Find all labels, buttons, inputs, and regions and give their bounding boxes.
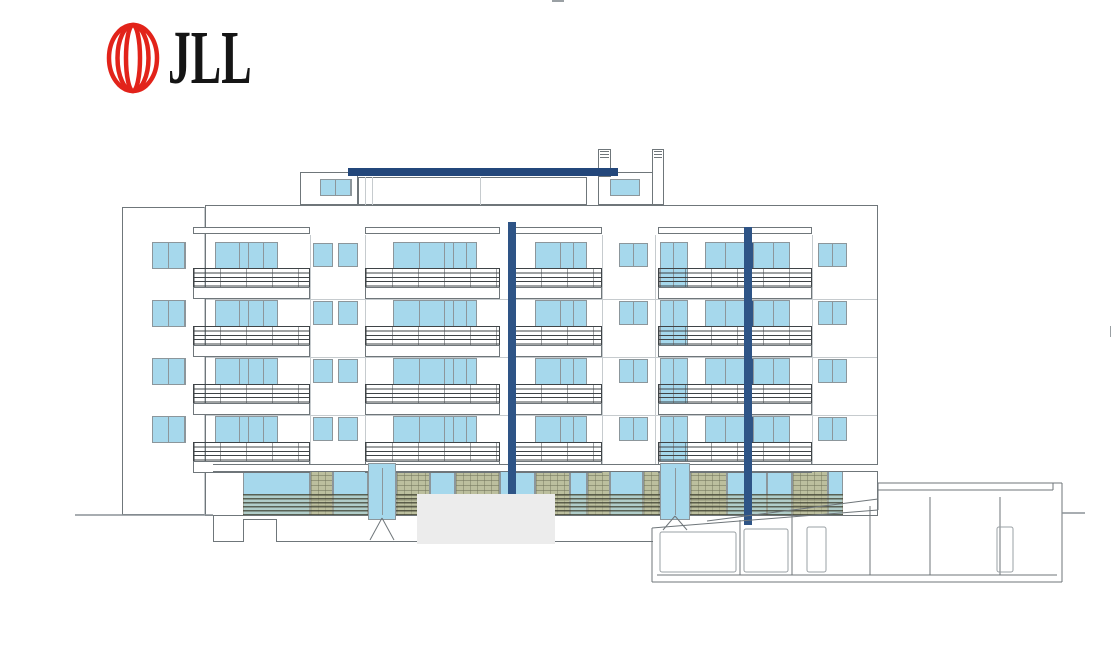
scan-artifact — [552, 0, 564, 2]
square-window-wide — [619, 301, 648, 325]
glass-pane — [169, 301, 184, 326]
balcony-railing — [514, 442, 602, 461]
glass-pane — [774, 359, 790, 384]
structural-column — [744, 227, 752, 525]
glass-pane — [754, 243, 773, 268]
glass-pane — [240, 359, 248, 384]
balcony-railing — [193, 442, 310, 461]
glass-pane — [574, 417, 586, 442]
glass-pane — [634, 302, 647, 324]
glass-pane — [420, 417, 444, 442]
glass-pane — [339, 360, 357, 382]
glass-pane — [561, 417, 573, 442]
glass-pane — [726, 301, 744, 326]
glass-pane — [445, 359, 453, 384]
balcony-slab — [514, 287, 602, 299]
balcony-door-b — [393, 358, 477, 385]
entrance-mullion — [382, 468, 383, 515]
glass-pane — [264, 301, 278, 326]
balcony-railing — [514, 326, 602, 345]
glass-pane — [726, 243, 744, 268]
glass-pane — [536, 417, 560, 442]
panel-joint-line — [655, 235, 656, 464]
balcony-slab — [658, 345, 812, 357]
glass-pane — [216, 301, 239, 326]
glass-pane — [339, 418, 357, 440]
balcony-slab — [514, 345, 602, 357]
glass-pane — [726, 359, 744, 384]
glass-pane — [249, 417, 263, 442]
glass-pane — [536, 359, 560, 384]
jll-sphere-mark-icon — [106, 22, 160, 94]
balcony-railing — [365, 326, 500, 345]
balcony-slab — [193, 345, 310, 357]
square-window — [313, 417, 333, 441]
penthouse-window — [610, 179, 640, 196]
penthouse-mid — [358, 177, 587, 205]
glass-pane — [420, 359, 444, 384]
glass-pane — [314, 302, 332, 324]
entrance-door — [660, 463, 690, 520]
panel-joint-line — [602, 235, 603, 464]
glass-pane — [314, 244, 332, 266]
glass-pane — [394, 417, 419, 442]
glass-pane — [574, 243, 586, 268]
square-window-wide — [619, 417, 648, 441]
glass-pane — [249, 359, 263, 384]
penthouse-window — [320, 179, 352, 196]
glass-pane — [833, 244, 846, 266]
balcony-railing — [658, 384, 812, 403]
glass-pane — [467, 301, 477, 326]
side-window — [152, 300, 186, 327]
glass-pane — [264, 359, 278, 384]
glass-pane — [706, 301, 725, 326]
glass-pane — [819, 360, 832, 382]
balcony-slab — [658, 287, 812, 299]
balcony-railing — [514, 384, 602, 403]
glass-pane — [420, 243, 444, 268]
glass-pane — [467, 359, 477, 384]
square-window-wide — [619, 243, 648, 267]
glass-pane — [620, 418, 633, 440]
glass-pane — [240, 301, 248, 326]
canopy-slab — [514, 227, 602, 234]
chimney-vent-grille — [600, 151, 609, 160]
square-window-wide — [818, 243, 847, 267]
ground-slab-band — [213, 464, 878, 472]
glass-pane — [774, 417, 790, 442]
glass-pane — [216, 359, 239, 384]
square-window-wide — [818, 301, 847, 325]
balcony-door-c — [535, 242, 587, 269]
balcony-door-c — [535, 416, 587, 443]
balcony-door-a — [215, 416, 278, 443]
glass-pane — [467, 243, 477, 268]
glass-pane — [321, 180, 335, 195]
glass-pane — [240, 243, 248, 268]
square-window-wide — [619, 359, 648, 383]
glass-pane — [561, 359, 573, 384]
glass-pane — [634, 418, 647, 440]
glass-pane — [620, 244, 633, 266]
balcony-door-c — [535, 300, 587, 327]
glass-pane — [706, 417, 725, 442]
glass-pane — [833, 418, 846, 440]
balcony-door-b — [393, 242, 477, 269]
glass-pane — [394, 243, 419, 268]
glass-pane — [394, 301, 419, 326]
glass-pane — [240, 417, 248, 442]
balcony-railing — [193, 326, 310, 345]
glass-pane — [394, 359, 419, 384]
glass-pane — [754, 417, 773, 442]
glass-pane — [445, 243, 453, 268]
scan-artifact — [1110, 326, 1111, 337]
brochure-page: JLL — [0, 0, 1116, 655]
side-window — [152, 358, 186, 385]
glass-pane — [249, 243, 263, 268]
balcony-slab — [193, 403, 310, 415]
glass-pane — [634, 360, 647, 382]
square-window — [313, 359, 333, 383]
balcony-door-a — [215, 358, 278, 385]
glass-pane — [561, 243, 573, 268]
glass-pane — [611, 180, 639, 195]
glass-pane — [574, 301, 586, 326]
glass-pane — [336, 180, 350, 195]
balcony-railing — [514, 268, 602, 287]
balcony-railing — [658, 442, 812, 461]
glass-pane — [467, 417, 477, 442]
square-window-wide — [818, 359, 847, 383]
glass-pane — [169, 417, 184, 442]
glass-pane — [249, 301, 263, 326]
glass-pane — [833, 302, 846, 324]
basement-door — [243, 519, 277, 542]
canopy-slab — [365, 227, 500, 234]
glass-pane — [264, 243, 278, 268]
balcony-railing — [658, 326, 812, 345]
balcony-railing — [365, 442, 500, 461]
penthouse-joint — [365, 177, 366, 205]
roof-beam — [348, 168, 618, 176]
glass-pane — [339, 302, 357, 324]
panel-joint-line — [310, 235, 311, 464]
balcony-slab — [658, 403, 812, 415]
glass-pane — [169, 243, 184, 268]
glass-pane — [819, 302, 832, 324]
balcony-slab — [365, 345, 500, 357]
balcony-slab — [514, 403, 602, 415]
glass-pane — [754, 359, 773, 384]
glass-pane — [153, 301, 168, 326]
whiteout-box — [417, 494, 555, 544]
square-window — [313, 243, 333, 267]
glass-pane — [561, 301, 573, 326]
glass-pane — [153, 417, 168, 442]
glass-pane — [339, 244, 357, 266]
canopy-slab — [193, 227, 310, 234]
glass-pane — [774, 243, 790, 268]
glass-pane — [454, 301, 466, 326]
glass-pane — [706, 359, 725, 384]
square-window-wide — [818, 417, 847, 441]
glass-pane — [819, 244, 832, 266]
balcony-railing — [193, 268, 310, 287]
balcony-slab — [193, 287, 310, 299]
entrance-door — [368, 463, 396, 520]
glass-pane — [819, 418, 832, 440]
balcony-railing — [193, 384, 310, 403]
glass-pane — [314, 360, 332, 382]
square-window — [338, 417, 358, 441]
square-window — [338, 243, 358, 267]
glass-pane — [726, 417, 744, 442]
glass-pane — [754, 301, 773, 326]
glass-pane — [216, 417, 239, 442]
square-window — [338, 359, 358, 383]
square-window — [338, 301, 358, 325]
penthouse-joint — [372, 177, 373, 205]
glass-pane — [706, 243, 725, 268]
balcony-railing — [365, 268, 500, 287]
glass-pane — [454, 243, 466, 268]
penthouse-joint — [480, 177, 481, 205]
glass-pane — [536, 301, 560, 326]
structural-column — [508, 222, 516, 494]
glass-pane — [314, 418, 332, 440]
glass-pane — [454, 417, 466, 442]
canopy-slab — [658, 227, 812, 234]
glass-pane — [620, 360, 633, 382]
glass-pane — [153, 243, 168, 268]
glass-pane — [420, 301, 444, 326]
jll-wordmark: JLL — [168, 20, 252, 96]
glass-pane — [833, 360, 846, 382]
panel-joint-line — [812, 235, 813, 464]
balcony-door-b — [393, 416, 477, 443]
glass-pane — [536, 243, 560, 268]
entrance-mullion — [675, 468, 676, 515]
glass-pane — [445, 417, 453, 442]
glass-pane — [216, 243, 239, 268]
glass-pane — [454, 359, 466, 384]
balcony-door-a — [215, 242, 278, 269]
side-window — [152, 416, 186, 443]
balcony-door-b — [393, 300, 477, 327]
balcony-slab — [365, 403, 500, 415]
square-window — [313, 301, 333, 325]
glass-pane — [153, 359, 168, 384]
chimney-vent-grille — [654, 151, 662, 160]
glass-pane — [774, 301, 790, 326]
balcony-railing — [365, 384, 500, 403]
glass-pane — [169, 359, 184, 384]
glass-pane — [264, 417, 278, 442]
glass-pane — [445, 301, 453, 326]
balcony-door-c — [535, 358, 587, 385]
balcony-slab — [365, 287, 500, 299]
glass-pane — [620, 302, 633, 324]
side-window — [152, 242, 186, 269]
balcony-door-a — [215, 300, 278, 327]
glass-pane — [634, 244, 647, 266]
glass-pane — [574, 359, 586, 384]
balcony-railing — [658, 268, 812, 287]
